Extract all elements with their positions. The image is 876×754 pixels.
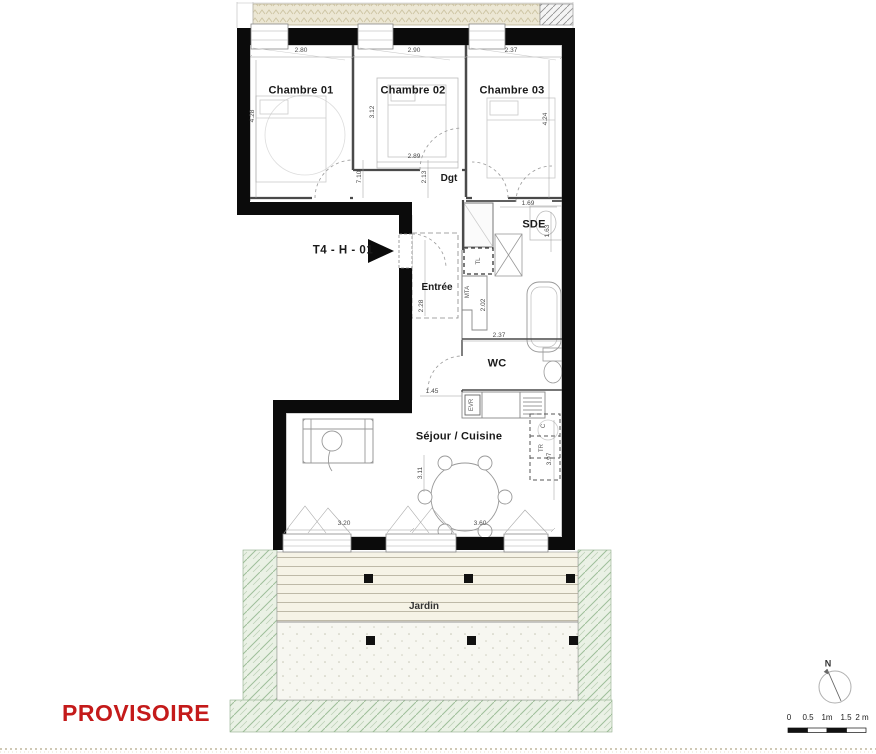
dim-mta-height: 2.02: [481, 299, 488, 312]
room-label-sde: SDE: [522, 220, 545, 231]
watermark-text: PROVISOIRE: [62, 700, 210, 727]
dim-sejour-left-width: 3.20: [338, 521, 351, 528]
scale-bar: [788, 728, 866, 733]
room-label-chambre02: Chambre 02: [381, 86, 446, 97]
north-label: N: [825, 660, 832, 669]
dim-c2-height: 3.12: [370, 106, 377, 119]
dining-table: [418, 456, 512, 538]
room-label-entree: Entrée: [421, 283, 452, 293]
scale-tick-0: 0: [787, 714, 791, 722]
dim-sejour-right-width: 3.60: [474, 521, 487, 528]
equipment-label-tr: TR: [539, 444, 545, 452]
dim-sde-width: 1.69: [522, 201, 535, 208]
room-label-jardin: Jardin: [409, 602, 439, 612]
sofa: [303, 419, 373, 471]
shower-tray: [495, 234, 522, 276]
equipment-label-evr: EVR: [469, 399, 475, 411]
dim-entree-height: 2.28: [419, 300, 426, 313]
bottom-windows: [283, 506, 548, 552]
dim-c2-width: 2.90: [408, 48, 421, 55]
room-label-wc: WC: [488, 359, 507, 370]
equipment-label-tl: TL: [476, 257, 482, 264]
scale-tick-2: 1m: [821, 714, 832, 722]
room-label-chambre03: Chambre 03: [480, 86, 545, 97]
scale-tick-1: 0.5: [802, 714, 813, 722]
dim-wc-width: 1.45: [426, 389, 439, 396]
dim-c1-width: 2.80: [295, 48, 308, 55]
dim-sejour-height: 3.11: [418, 467, 425, 479]
bed-chambre03: [487, 98, 555, 178]
sde-cabinet: [464, 203, 493, 247]
floorplan-drawing: [0, 0, 876, 754]
door-arcs: [315, 128, 552, 390]
dim-c3-width: 2.37: [505, 48, 518, 55]
dim-hall-height: 7.10: [357, 171, 364, 184]
unit-label: T4 - H - 01: [313, 245, 373, 257]
equipment-label-mta: MTA: [465, 286, 471, 298]
scale-tick-4: 2 m: [855, 714, 868, 722]
floorplan-page: Chambre 01 Chambre 02 Chambre 03 Dgt SDE…: [0, 0, 876, 754]
dim-c1-height: 4.28: [250, 110, 257, 123]
dim-c2-bottom: 2.89: [408, 154, 421, 161]
room-label-sejour: Séjour / Cuisine: [416, 432, 502, 443]
dim-stock-height: 3.97: [547, 453, 554, 466]
toilet: [543, 348, 563, 383]
boundary-dotted-line: [0, 749, 876, 752]
room-label-dgt: Dgt: [441, 174, 458, 184]
scale-tick-3: 1.5: [840, 714, 851, 722]
bathtub: [527, 282, 561, 352]
room-label-chambre01: Chambre 01: [269, 86, 334, 97]
dim-c3-height: 4.24: [543, 113, 550, 126]
bed-chambre01: [256, 95, 345, 182]
entrance-door: [368, 234, 412, 268]
terrace-deck: [277, 552, 578, 700]
equipment-label-c: C: [541, 424, 547, 428]
dim-bath-width: 2.37: [493, 333, 506, 340]
north-arrow-icon: [819, 669, 851, 703]
dim-dgt-height: 2.13: [422, 171, 429, 184]
dim-sde-height: 1.63: [545, 225, 552, 238]
